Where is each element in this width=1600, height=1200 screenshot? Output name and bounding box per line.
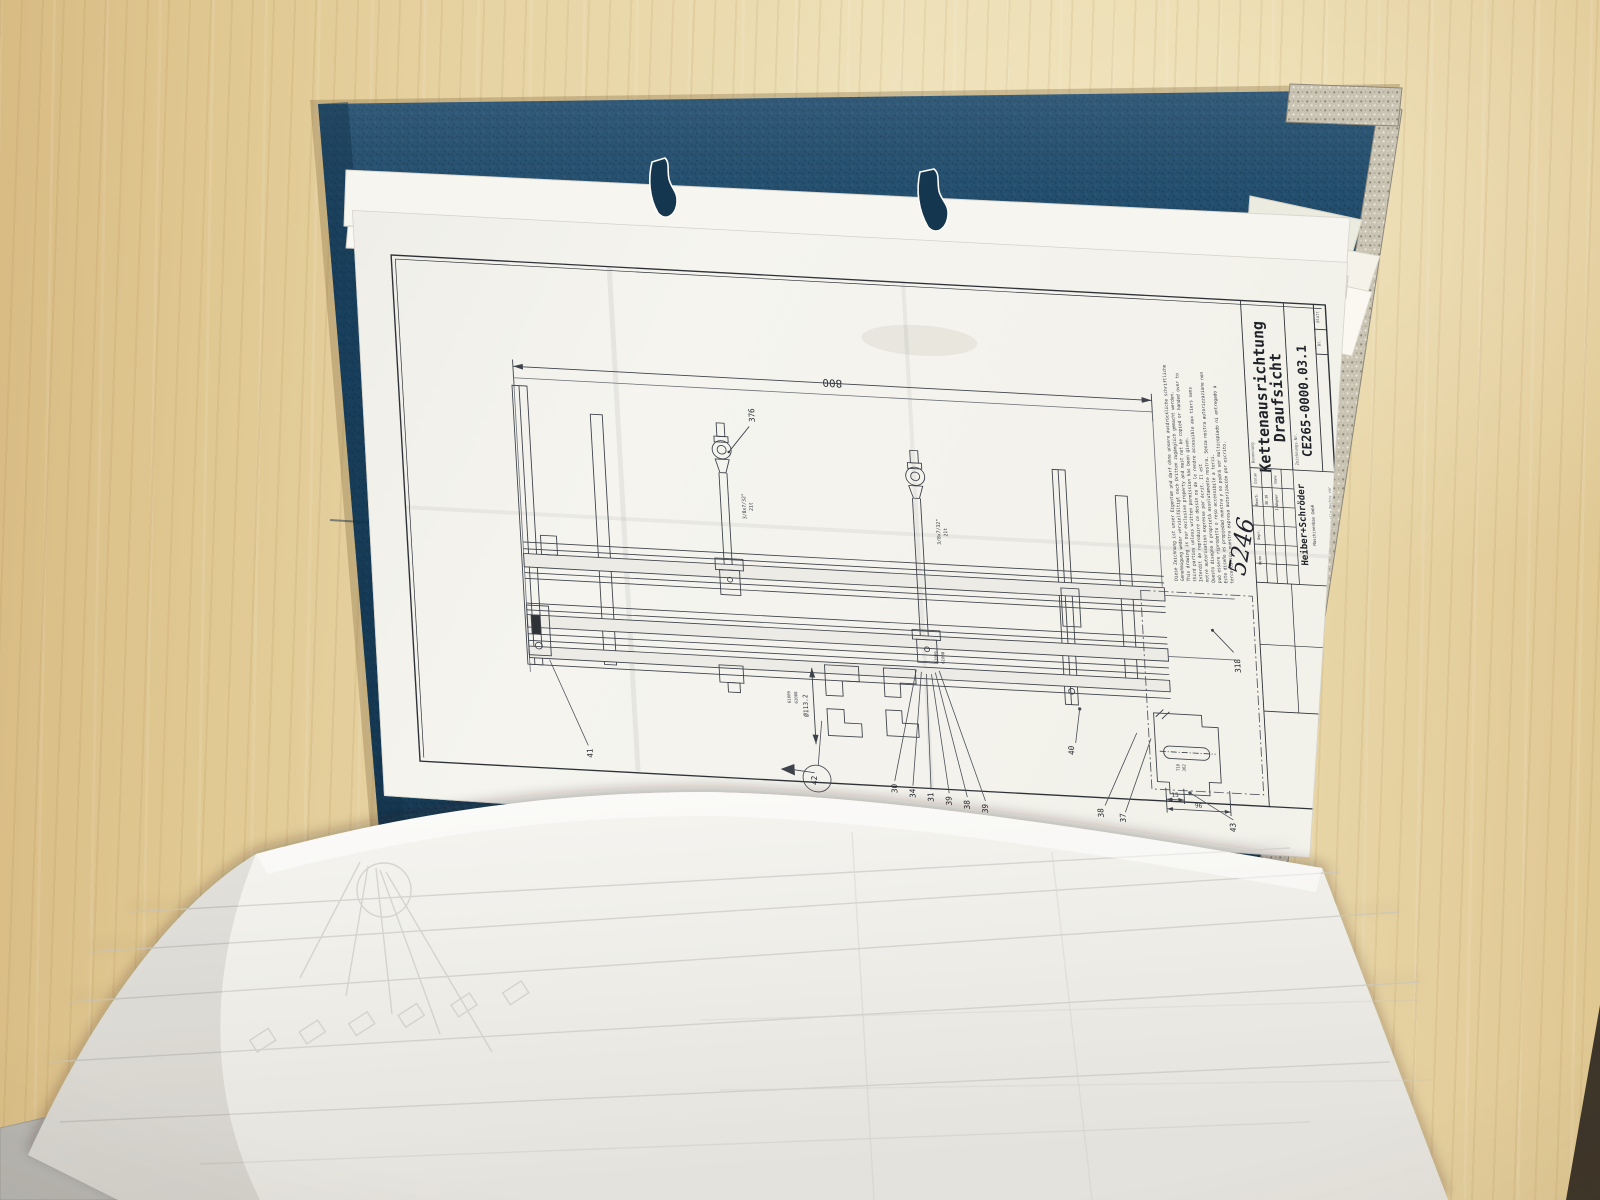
callout-41: 41 <box>585 748 595 758</box>
callout-42: 42 <box>810 775 820 785</box>
detail-note-2: 362 <box>1181 764 1187 772</box>
chain-spec-2-line2: 21t <box>943 528 950 537</box>
table-col-name: Name <box>1273 475 1278 483</box>
callout-38: 38 <box>962 800 972 810</box>
callout-43: 43 <box>1228 822 1238 832</box>
flat-foreground-page <box>28 792 1448 1200</box>
callout-31: 31 <box>926 792 936 802</box>
metal-corner-piece <box>1286 84 1402 126</box>
photo-of-binder-with-technical-drawing: 800 <box>0 0 1600 1200</box>
callout-376: 376 <box>747 408 757 423</box>
blatt-label: Blatt <box>1315 311 1321 323</box>
part-number-3: 61009 <box>933 651 939 664</box>
chain-spec-1-line2: 21t <box>748 502 755 511</box>
drawing-sheet: 800 <box>352 210 1356 858</box>
callout-39: 39 <box>944 796 954 806</box>
table-row-norm: Norm <box>1258 556 1263 564</box>
table-row-bearb: Bearb. <box>1254 493 1259 506</box>
dimension-15-text: 15 <box>1171 793 1179 799</box>
callout-39b: 39 <box>980 803 990 813</box>
dimension-dia113-text: Ø113.2 <box>801 694 810 717</box>
dark-corner-object <box>1566 1005 1600 1200</box>
part-number-2: 61008 <box>793 691 799 704</box>
callout-38b: 38 <box>1096 808 1106 818</box>
bl-label: Bl. <box>1316 339 1321 346</box>
callout-318: 318 <box>1233 659 1243 674</box>
dimension-96-text: 96 <box>1195 803 1203 809</box>
part-number-4: 61008 <box>940 651 946 664</box>
callout-40: 40 <box>1067 745 1077 755</box>
dimension-800-text: 800 <box>822 376 843 390</box>
bearb-datum-value: 30.10 <box>1264 495 1269 506</box>
callout-30: 30 <box>890 783 900 793</box>
callout-34: 34 <box>908 788 918 798</box>
detail-note-1: T10 <box>1175 763 1181 771</box>
part-number-1: 61009 <box>786 690 792 703</box>
callout-37: 37 <box>1118 813 1128 823</box>
table-col-datum: Datum <box>1253 473 1258 484</box>
scene-artwork: 800 <box>0 0 1600 1200</box>
